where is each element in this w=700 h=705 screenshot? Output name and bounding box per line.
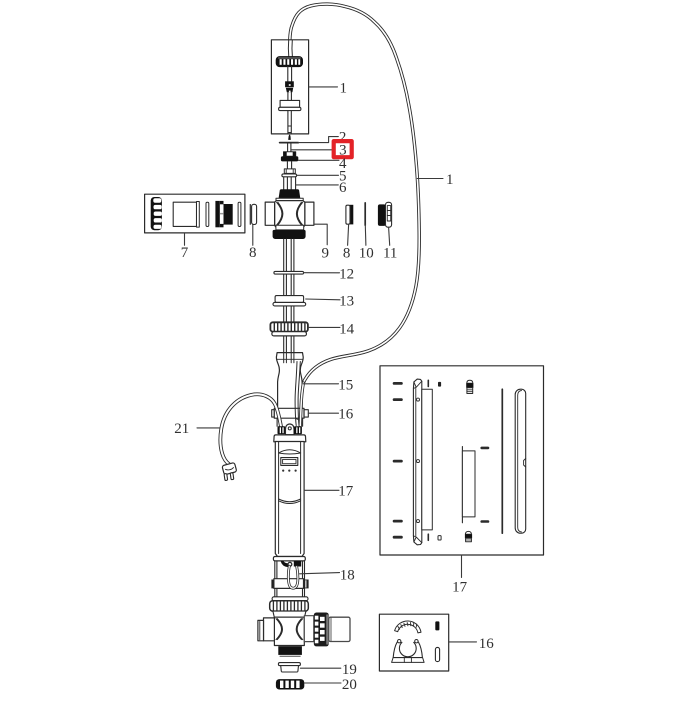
svg-text:18: 18: [340, 567, 355, 583]
svg-text:14: 14: [339, 322, 355, 338]
svg-text:13: 13: [339, 293, 354, 309]
svg-text:16: 16: [338, 407, 354, 423]
svg-text:1: 1: [339, 80, 347, 96]
svg-text:15: 15: [338, 378, 353, 394]
svg-text:8: 8: [343, 245, 351, 261]
svg-text:20: 20: [342, 677, 357, 693]
svg-text:12: 12: [339, 266, 354, 282]
svg-text:17: 17: [452, 579, 468, 595]
svg-text:17: 17: [338, 484, 354, 500]
svg-text:7: 7: [181, 245, 189, 261]
svg-text:9: 9: [321, 245, 329, 261]
svg-text:19: 19: [342, 662, 357, 678]
svg-text:16: 16: [479, 636, 495, 652]
svg-text:6: 6: [339, 180, 347, 196]
svg-text:1: 1: [446, 172, 454, 188]
svg-text:10: 10: [359, 245, 374, 261]
svg-text:21: 21: [174, 421, 189, 437]
svg-text:8: 8: [249, 245, 257, 261]
svg-text:11: 11: [383, 245, 397, 261]
